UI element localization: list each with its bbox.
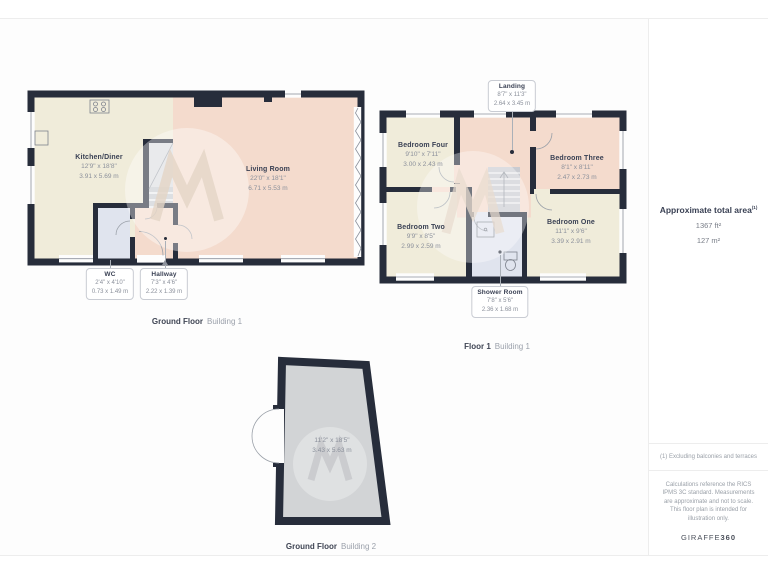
room-label-bedroom-three: Bedroom Three 8'1" x 8'11" 2.47 x 2.73 m	[550, 154, 604, 182]
total-area-title: Approximate total area(1)	[649, 205, 768, 215]
caption-ground-floor-building1: Ground FloorBuilding 1	[152, 311, 242, 329]
total-area-imperial: 1367 ft²	[649, 221, 768, 230]
floorplan-page: Kitchen/Diner 12'9" x 18'8" 3.91 x 5.69 …	[0, 0, 768, 576]
room-label-living-room: Living Room 22'0" x 18'1" 6.71 x 5.53 m	[246, 165, 290, 193]
disclaimer-note: Calculations reference the RICS IPMS 3C …	[649, 471, 768, 528]
floorplan-canvas: Kitchen/Diner 12'9" x 18'8" 3.91 x 5.69 …	[0, 18, 648, 556]
total-area-metric: 127 m²	[649, 236, 768, 245]
callout-wc: WC 2'4" x 4'10" 0.73 x 1.49 m	[86, 268, 134, 300]
landing-dot	[510, 150, 514, 154]
caption-ground-floor-building2: Ground FloorBuilding 2	[286, 536, 376, 554]
sidebar-notes: (1) Excluding balconies and terraces Cal…	[649, 443, 768, 556]
room-label-bedroom-two: Bedroom Two 9'9" x 8'5" 2.99 x 2.59 m	[397, 223, 445, 251]
footnote-marker: (1)	[752, 205, 758, 210]
plan-floor1-building1-drawing	[378, 105, 630, 287]
wc-floor	[98, 208, 130, 259]
room-label-garage: 11'2" x 18'5" 3.43 x 5.63 m	[312, 436, 351, 455]
total-area-block: Approximate total area(1) 1367 ft² 127 m…	[649, 205, 768, 245]
callout-hallway: Hallway 7'3" x 4'6" 2.22 x 1.39 m	[140, 268, 188, 300]
room-label-bedroom-one: Bedroom One 11'1" x 9'6" 3.39 x 2.91 m	[547, 218, 595, 246]
callout-landing: Landing 8'7" x 11'3" 2.64 x 3.45 m	[488, 80, 536, 112]
wc-leader-line	[110, 260, 111, 268]
info-sidebar: Approximate total area(1) 1367 ft² 127 m…	[648, 18, 768, 556]
landing-leader-line	[512, 108, 513, 150]
shower-leader-line	[500, 255, 501, 286]
excluding-note: (1) Excluding balconies and terraces	[649, 444, 768, 470]
callout-shower-room: Shower Room 7'8" x 5'6" 2.36 x 1.68 m	[471, 286, 528, 318]
giraffe360-logo: GIRAFFE360	[649, 533, 768, 542]
watermark-logo	[125, 128, 249, 252]
entrance-arrow-icon	[162, 260, 168, 265]
room-label-bedroom-four: Bedroom Four 9'10" x 7'11" 3.00 x 2.43 m	[398, 141, 448, 169]
room-label-kitchen-diner: Kitchen/Diner 12'9" x 18'8" 3.91 x 5.69 …	[75, 153, 122, 181]
caption-floor1-building1: Floor 1Building 1	[464, 336, 530, 354]
hallway-dot	[164, 237, 167, 240]
plan-floor1-building1	[378, 105, 630, 287]
window-zigzag-icon	[354, 107, 361, 257]
double-door-icon	[252, 405, 284, 467]
